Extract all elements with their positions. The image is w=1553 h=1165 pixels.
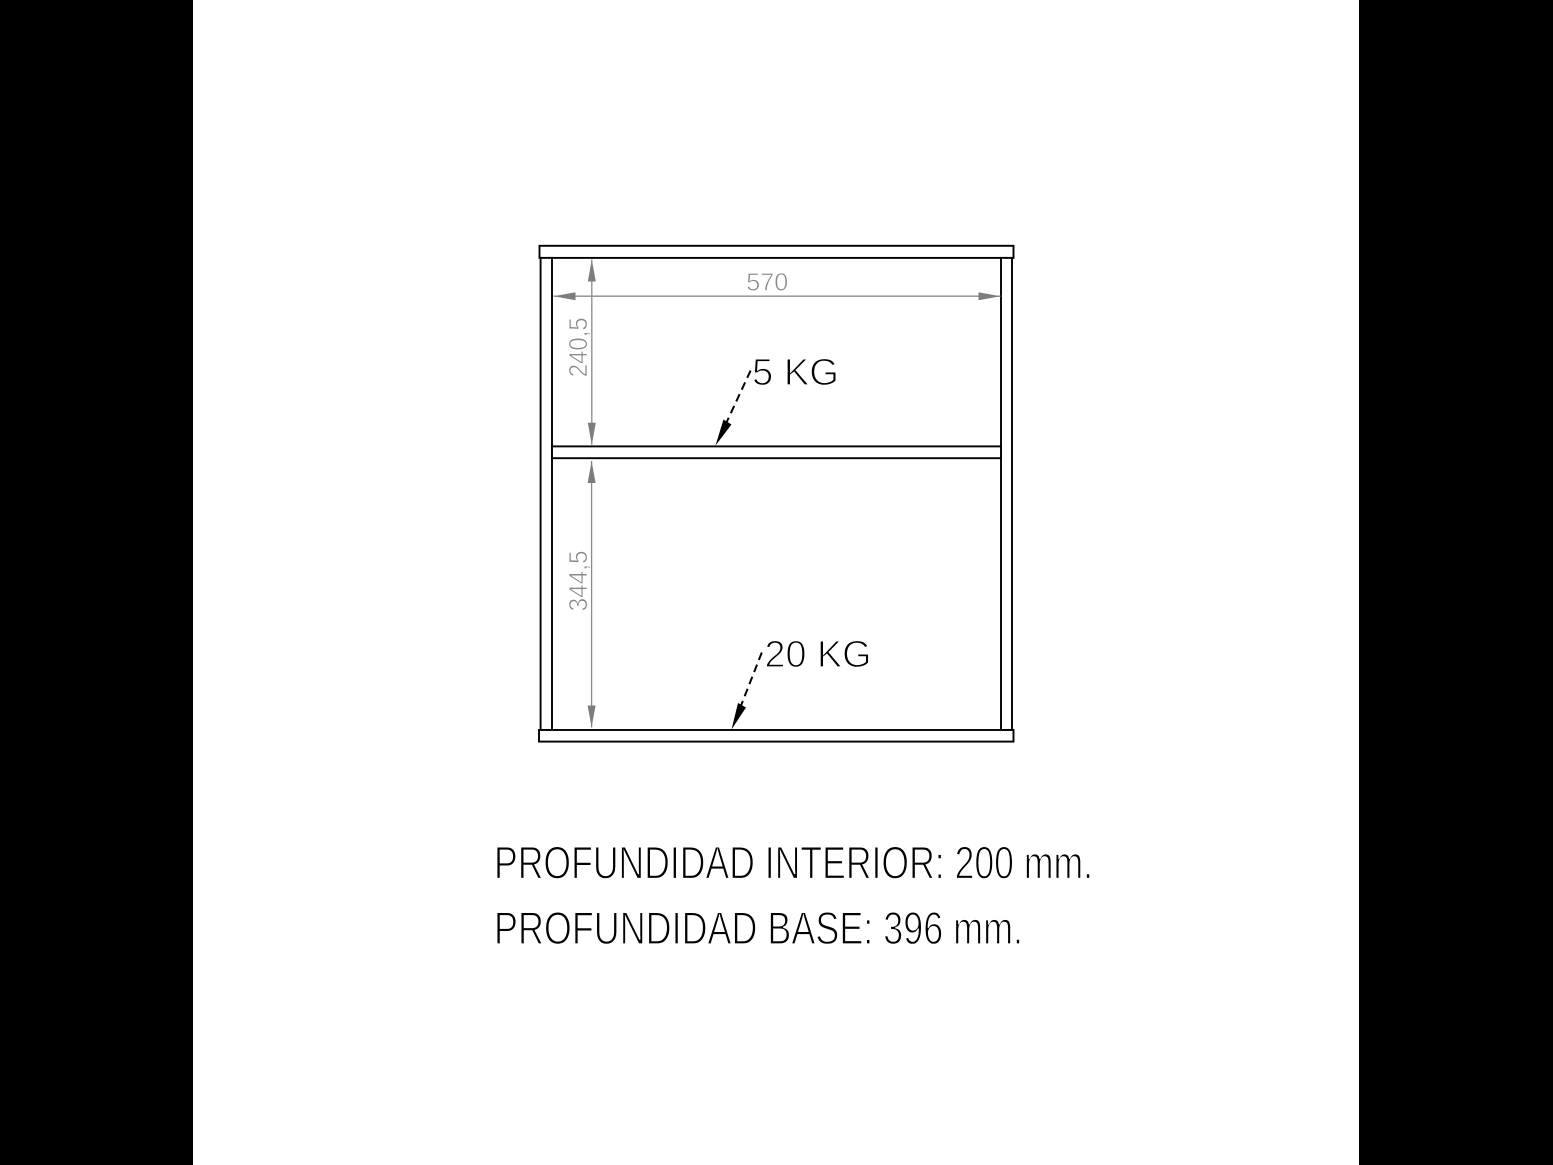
svg-text:570: 570 [746,269,788,297]
svg-text:240,5: 240,5 [563,317,593,377]
svg-text:PROFUNDIDAD INTERIOR: 200 mm.: PROFUNDIDAD INTERIOR: 200 mm. [494,837,1093,889]
svg-text:PROFUNDIDAD BASE: 396 mm.: PROFUNDIDAD BASE: 396 mm. [494,902,1023,954]
svg-text:5 KG: 5 KG [752,352,839,394]
svg-text:20 KG: 20 KG [765,634,872,676]
svg-text:344,5: 344,5 [563,550,593,611]
